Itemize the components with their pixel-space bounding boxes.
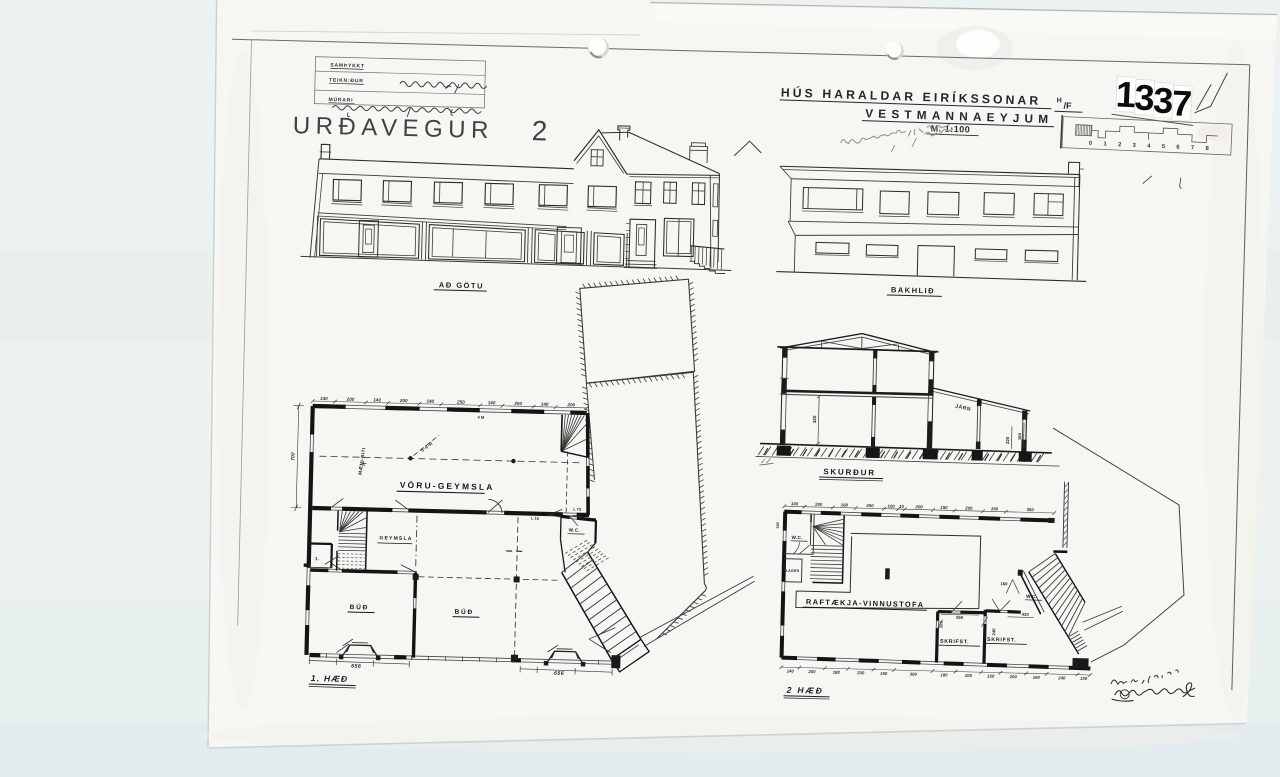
svg-text:100: 100 [887,504,895,509]
svg-text:200: 200 [513,401,522,406]
svg-text:140: 140 [426,399,434,404]
svg-text:320: 320 [812,415,817,423]
svg-text:200: 200 [856,670,865,675]
svg-text:180: 180 [833,670,841,675]
svg-text:240: 240 [1057,675,1066,680]
svg-text:150: 150 [940,505,948,510]
svg-text:656: 656 [351,664,361,670]
svg-text:140: 140 [373,397,381,402]
svg-text:LAGER: LAGER [786,569,800,573]
svg-text:700: 700 [290,452,296,461]
svg-text:GEYMSLA: GEYMSLA [379,535,412,542]
svg-text:180: 180 [940,672,948,677]
svg-text:1.: 1. [315,556,319,561]
svg-text:200: 200 [865,503,874,508]
svg-text:L 73: L 73 [573,507,582,512]
svg-text:1. HÆÐ: 1. HÆÐ [311,673,349,684]
svg-text:200: 200 [1009,674,1018,679]
svg-text:2 HÆÐ: 2 HÆÐ [786,685,824,696]
svg-text:140: 140 [488,400,496,405]
svg-text:200: 200 [964,673,973,678]
svg-text:10: 10 [899,504,905,509]
svg-text:0: 0 [1089,141,1092,147]
svg-text:200: 200 [399,398,408,403]
svg-text:160: 160 [880,671,888,676]
svg-text:160: 160 [1000,581,1008,586]
svg-text:200: 200 [914,504,923,509]
svg-text:140: 140 [776,522,780,528]
svg-text:W.C.: W.C. [569,528,581,533]
svg-text:550: 550 [956,615,964,620]
svg-text:140: 140 [791,501,799,506]
svg-text:200: 200 [964,506,973,511]
svg-text:/F: /F [1063,101,1072,111]
svg-text:160: 160 [1033,675,1041,680]
svg-text:250: 250 [456,399,465,404]
svg-text:W.C.: W.C. [1026,594,1037,599]
svg-text:430: 430 [1022,612,1030,617]
svg-text:7: 7 [1171,82,1193,124]
svg-text:4 M: 4 M [477,415,484,420]
svg-text:URÐAVEGUR: URÐAVEGUR [293,112,495,144]
svg-text:7: 7 [1191,145,1194,151]
svg-text:220: 220 [1005,436,1010,444]
svg-text:SKRIFST.: SKRIFST. [940,639,970,646]
svg-text:160: 160 [991,506,999,511]
svg-text:SKURÐUR: SKURÐUR [823,467,876,477]
svg-text:320: 320 [938,620,943,628]
svg-text:BAKHLIÐ: BAKHLIÐ [891,285,935,295]
svg-text:160: 160 [841,502,849,507]
svg-text:150: 150 [987,674,995,679]
svg-text:200: 200 [346,397,355,402]
svg-text:300: 300 [910,672,918,677]
svg-text:2: 2 [1118,142,1121,148]
svg-text:200: 200 [814,502,823,507]
svg-text:200: 200 [807,669,816,674]
svg-text:350: 350 [1026,507,1034,512]
svg-text:L 15: L 15 [531,516,540,521]
svg-text:140: 140 [541,402,549,407]
svg-text:H: H [1057,97,1062,104]
svg-text:140: 140 [320,396,328,401]
svg-text:AÐ GÖTU: AÐ GÖTU [439,280,484,290]
svg-text:100: 100 [1080,676,1088,681]
svg-text:140: 140 [787,668,795,673]
svg-text:240: 240 [991,628,996,636]
svg-text:200: 200 [566,402,575,407]
svg-text:2: 2 [531,115,547,146]
svg-text:160: 160 [1017,432,1022,440]
svg-text:SKRIFST.: SKRIFST. [987,637,1017,644]
svg-text:656: 656 [554,671,564,677]
svg-text:W.C.: W.C. [792,535,803,540]
